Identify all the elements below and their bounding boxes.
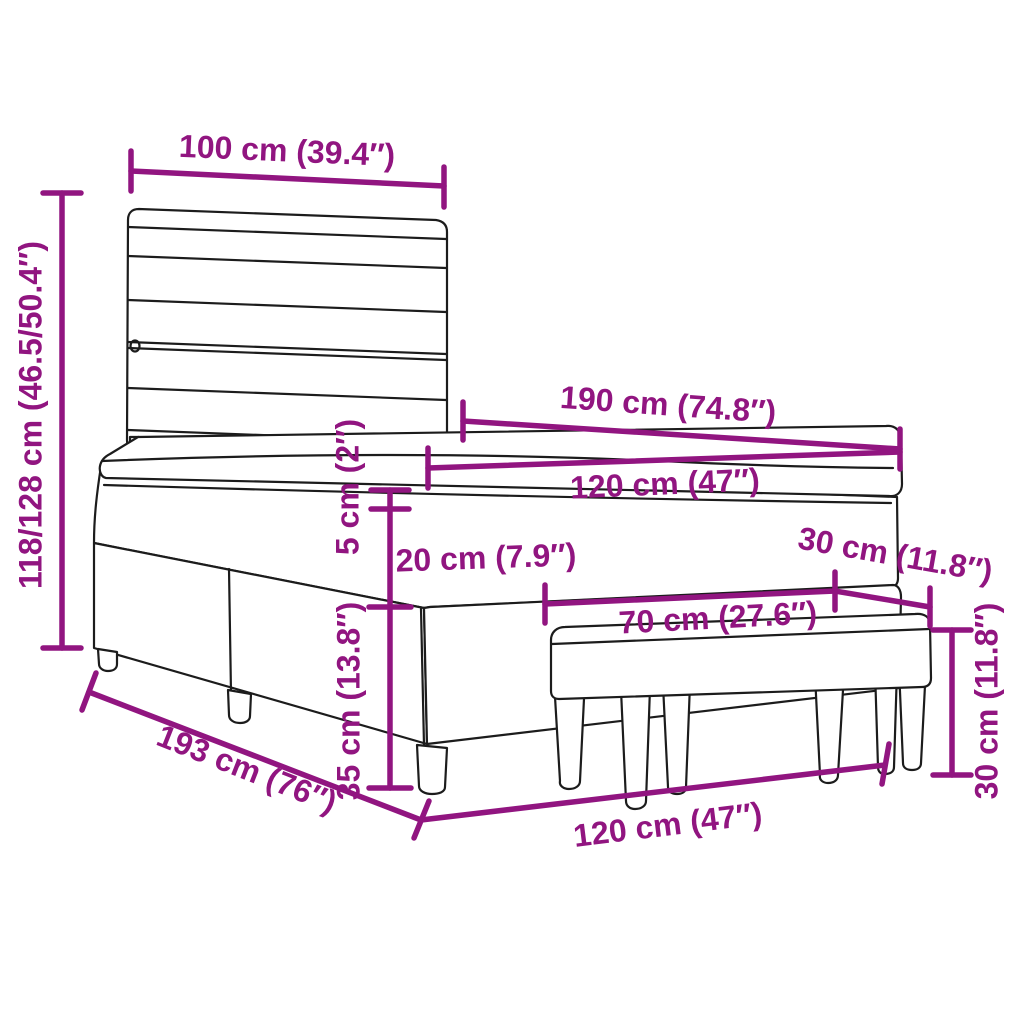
bed-leg — [228, 690, 251, 723]
topper-thickness-label: 5 cm (2″) — [329, 419, 365, 555]
total-height-label: 118/128 cm (46.5/50.4″) — [12, 241, 48, 589]
bench-leg — [663, 684, 690, 794]
bed-dimension-diagram: 100 cm (39.4″) 118/128 cm (46.5/50.4″) 1… — [0, 0, 1024, 1024]
bed-leg — [417, 745, 447, 794]
furniture-drawing — [94, 209, 931, 809]
diagram-canvas: 100 cm (39.4″) 118/128 cm (46.5/50.4″) 1… — [0, 0, 1024, 1024]
mattress-length-label: 190 cm (74.8″) — [559, 379, 777, 430]
bed-width-label: 120 cm (47″) — [571, 795, 764, 854]
headboard-outline — [127, 209, 447, 463]
dim-headboard-width-line — [131, 171, 444, 186]
headboard-width-label: 100 cm (39.4″) — [178, 128, 396, 173]
base-height-label: 35 cm (13.8″) — [330, 602, 366, 801]
bench-height-label: 30 cm (11.8″) — [968, 603, 1004, 800]
mattress-thickness-label: 20 cm (7.9″) — [395, 536, 577, 578]
bed-leg — [98, 649, 117, 671]
bed-length-label: 193 cm (76″) — [152, 717, 342, 820]
